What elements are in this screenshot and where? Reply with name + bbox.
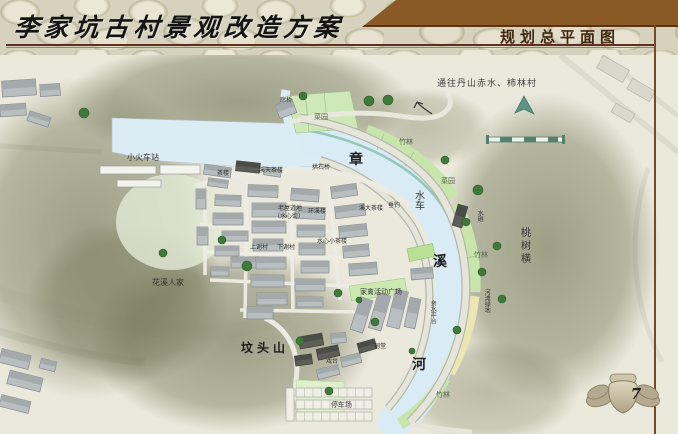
tree-icon [409,348,415,354]
tree-icon [364,96,374,106]
building [100,166,156,174]
field [116,174,228,270]
emblem-wings-icon [586,368,660,424]
slide: 通往丹山赤水、柿林村章水车溪河桃树横竹林菜园菜园竹林竹林小火车站花溪人家坟头山家… [0,0,678,434]
building [117,180,161,187]
tree-icon [462,218,470,226]
title-underline [6,44,655,46]
building [160,165,200,174]
tree-icon [79,108,89,118]
tree-icon [478,268,486,276]
tree-icon [383,95,393,105]
tree-icon [441,156,449,164]
tree-icon [159,249,167,257]
map-canvas [0,0,678,434]
tree-icon [334,289,342,297]
page-title: 李家坑古村景观改造方案 [12,8,346,44]
tree-icon [356,297,362,303]
page-number-emblem: 7 [586,368,660,424]
tree-icon [299,92,307,100]
tree-icon [242,261,252,271]
tree-icon [371,318,379,326]
tree-icon [498,295,506,303]
tree-icon [325,387,333,395]
tree-icon [493,242,501,250]
title-underline-shadow [6,47,655,48]
tree-icon [453,326,461,334]
tree-icon [296,337,304,345]
header-banner: 李家坑古村景观改造方案 规划总平面图 [0,0,678,55]
page-number: 7 [626,385,646,403]
header-brown-block [362,0,678,27]
tree-icon [218,236,226,244]
tree-icon [473,185,483,195]
